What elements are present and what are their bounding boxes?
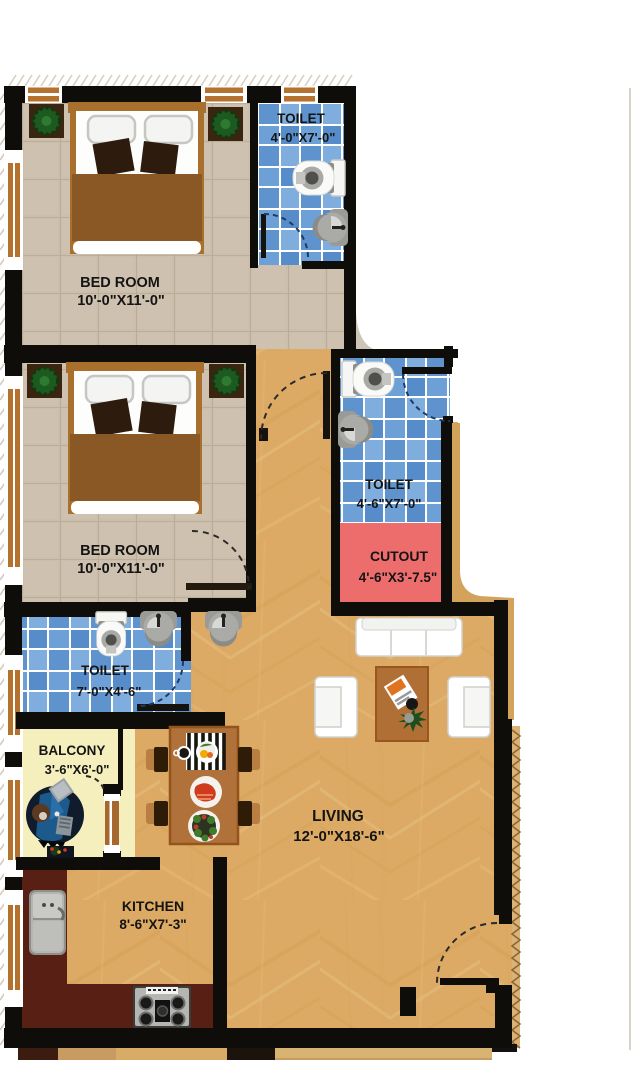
svg-text:CUTOUT: CUTOUT — [370, 548, 429, 564]
svg-text:4'-6"X3'-7.5": 4'-6"X3'-7.5" — [359, 570, 438, 585]
svg-text:3'-6"X6'-0": 3'-6"X6'-0" — [45, 762, 110, 777]
svg-text:TOILET: TOILET — [277, 111, 326, 126]
svg-text:4'-0"X7'-0": 4'-0"X7'-0" — [271, 130, 336, 145]
svg-text:BED ROOM: BED ROOM — [80, 275, 160, 291]
svg-text:KITCHEN: KITCHEN — [122, 898, 184, 914]
svg-text:10'-0"X11'-0": 10'-0"X11'-0" — [77, 293, 165, 309]
svg-text:10'-0"X11'-0": 10'-0"X11'-0" — [77, 561, 165, 577]
svg-text:LIVING: LIVING — [312, 808, 364, 825]
svg-text:TOILET: TOILET — [81, 663, 130, 678]
svg-text:12'-0"X18'-6": 12'-0"X18'-6" — [293, 828, 384, 845]
svg-text:BALCONY: BALCONY — [39, 743, 106, 758]
svg-text:TOILET: TOILET — [365, 477, 414, 492]
svg-text:7'-0"X4'-6": 7'-0"X4'-6" — [77, 684, 142, 699]
svg-text:4'-6"X7'-0": 4'-6"X7'-0" — [357, 496, 422, 511]
svg-text:BED ROOM: BED ROOM — [80, 543, 160, 559]
svg-text:8'-6"X7'-3": 8'-6"X7'-3" — [119, 917, 186, 932]
